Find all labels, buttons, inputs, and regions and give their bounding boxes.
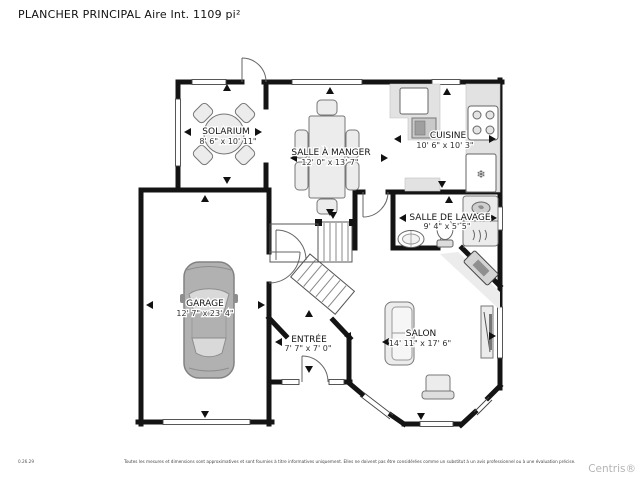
door-sidelight [282, 380, 299, 385]
room-label-solarium: SOLARIUM 8' 6" x 10' 11" [199, 127, 256, 146]
closet-door [276, 230, 306, 260]
armchair-icon [422, 375, 454, 399]
svg-text:❄: ❄ [476, 168, 485, 181]
sink-icon [398, 231, 424, 248]
svg-text:CUISINE: CUISINE [430, 131, 467, 141]
solarium-door [242, 58, 266, 82]
svg-text:8' 6" x 10' 11": 8' 6" x 10' 11" [199, 137, 256, 146]
floor-plan-page: PLANCHER PRINCIPAL Aire Int. 1109 pi² [0, 0, 640, 480]
kitchen-peninsula [405, 178, 440, 191]
svg-text:SALLE À MANGER: SALLE À MANGER [291, 146, 370, 158]
tv-unit-icon [481, 306, 493, 358]
window [292, 80, 362, 85]
window [498, 307, 503, 358]
staircase [291, 219, 356, 314]
svg-text:12' 7" x 23' 4": 12' 7" x 23' 4" [176, 309, 233, 318]
svg-text:12' 0" x 13' 7": 12' 0" x 13' 7" [301, 158, 358, 167]
window [176, 99, 181, 166]
svg-text:SOLARIUM: SOLARIUM [202, 127, 249, 137]
svg-text:14' 11" x 17' 6": 14' 11" x 17' 6" [389, 339, 451, 348]
front-door [302, 356, 328, 382]
svg-text:GARAGE: GARAGE [186, 299, 224, 309]
floor-plan-drawing: ❄ [0, 0, 640, 480]
door-sidelight [329, 380, 344, 385]
footer-code: 0.26.29 [18, 459, 34, 464]
svg-text:10' 6" x 10' 3": 10' 6" x 10' 3" [416, 141, 473, 150]
car-icon [180, 262, 238, 378]
refrigerator-icon: ❄ [466, 154, 496, 192]
stove-icon [468, 106, 498, 140]
centris-logo: Centris® [588, 463, 636, 475]
svg-text:SALON: SALON [406, 329, 437, 339]
laundry-door-top [363, 192, 388, 217]
window [192, 80, 226, 85]
garage-door [163, 420, 250, 425]
svg-text:7' 7" x 7' 0": 7' 7" x 7' 0" [284, 344, 331, 353]
upper-cabinet [400, 88, 428, 114]
bay-window-bottom [420, 422, 453, 427]
svg-text:9' 4" x 5' 5": 9' 4" x 5' 5" [423, 222, 470, 231]
footer-disclaimer: Toutes les mesures et dimensions sont ap… [124, 459, 616, 464]
garage-access-door [269, 252, 300, 283]
room-label-entree: ENTRÉE 7' 7" x 7' 0" [284, 333, 331, 353]
salon-furniture [385, 250, 500, 399]
